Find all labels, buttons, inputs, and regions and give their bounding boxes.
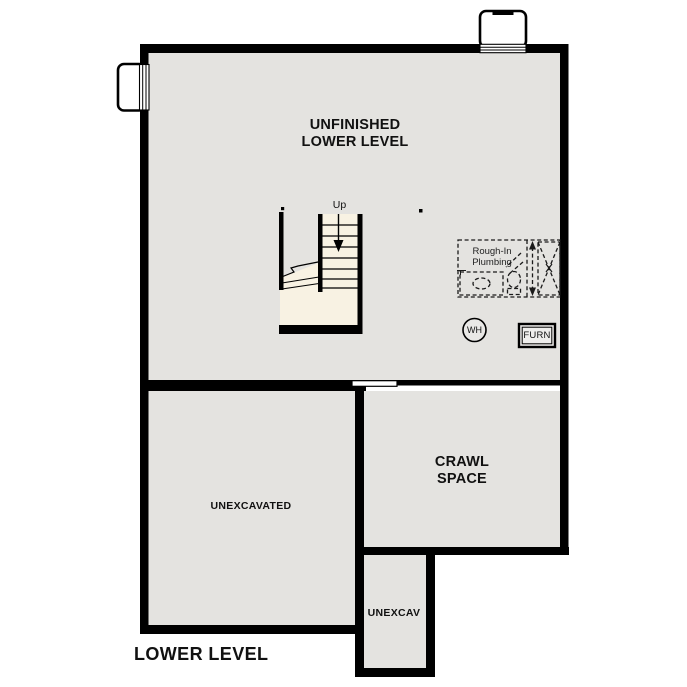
window-top-glazing — [480, 44, 526, 52]
wall-unexcav-right — [426, 551, 435, 677]
stair-right-wall — [358, 214, 363, 325]
window-left-glazing — [140, 65, 150, 111]
wall-unexcavated-bottom — [140, 625, 362, 634]
stair-landing-fill — [280, 288, 358, 325]
wall-right — [560, 44, 569, 555]
room-label-crawl-space: CRAWL SPACE — [430, 454, 494, 487]
room-label-unexcavated: UNEXCAVATED — [193, 500, 309, 512]
furnace-label: FURN — [520, 330, 554, 341]
rough-in-plumbing-label: Rough-In Plumbing — [468, 247, 516, 268]
floor-plan-drawing — [0, 0, 687, 687]
column-dot-left — [281, 207, 284, 210]
column-dot-right — [419, 209, 423, 213]
wall-center-vertical — [355, 384, 364, 677]
crawl-access-hatch — [352, 381, 397, 387]
stairs-up-label: Up — [327, 199, 352, 211]
window-well-top-tab — [493, 12, 514, 16]
stair-mid-wall — [318, 214, 323, 292]
window-left — [118, 64, 149, 111]
wall-left — [140, 44, 149, 634]
water-heater-label: WH — [463, 325, 486, 335]
stair-bottom-wall — [279, 325, 363, 334]
floor-plan: UNFINISHED LOWER LEVEL CRAWL SPACE UNEXC… — [0, 0, 687, 687]
room-label-unfinished-lower-level: UNFINISHED LOWER LEVEL — [297, 117, 413, 150]
stair-left-wall — [279, 212, 284, 290]
room-label-unexcav: UNEXCAV — [361, 607, 427, 619]
window-well-top — [480, 11, 526, 47]
wall-crawl-bottom — [355, 547, 569, 555]
window-top — [480, 11, 526, 53]
wall-unexcav-bottom — [355, 668, 435, 677]
plan-title: LOWER LEVEL — [134, 644, 334, 665]
